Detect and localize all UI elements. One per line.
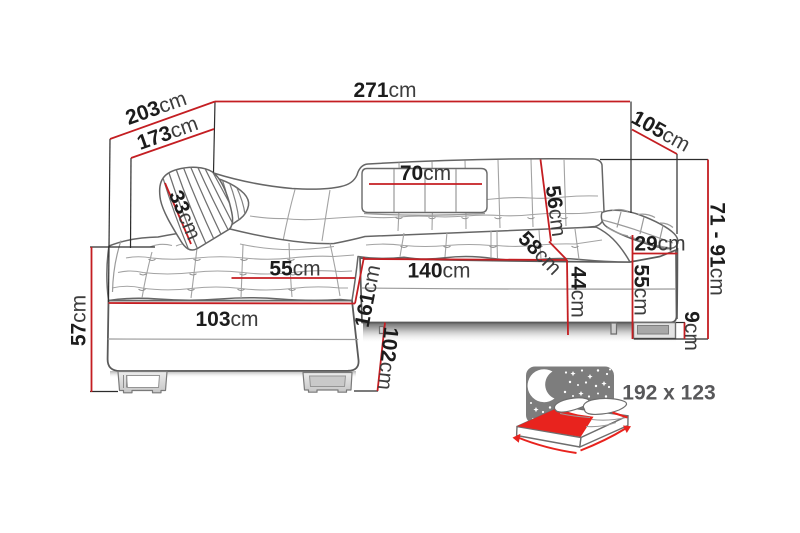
svg-text:70cm: 70cm	[400, 162, 451, 185]
svg-text:29cm: 29cm	[634, 233, 685, 256]
svg-text:71 - 91cm: 71 - 91cm	[706, 202, 729, 295]
svg-text:55cm: 55cm	[269, 258, 320, 281]
svg-text:103cm: 103cm	[195, 308, 258, 331]
svg-text:55cm: 55cm	[630, 264, 653, 315]
svg-text:9cm: 9cm	[680, 311, 703, 351]
svg-text:57cm: 57cm	[68, 295, 91, 346]
svg-text:192 x 123: 192 x 123	[622, 382, 715, 405]
svg-text:140cm: 140cm	[407, 260, 470, 283]
svg-text:44cm: 44cm	[567, 266, 590, 317]
svg-text:271cm: 271cm	[353, 79, 416, 102]
